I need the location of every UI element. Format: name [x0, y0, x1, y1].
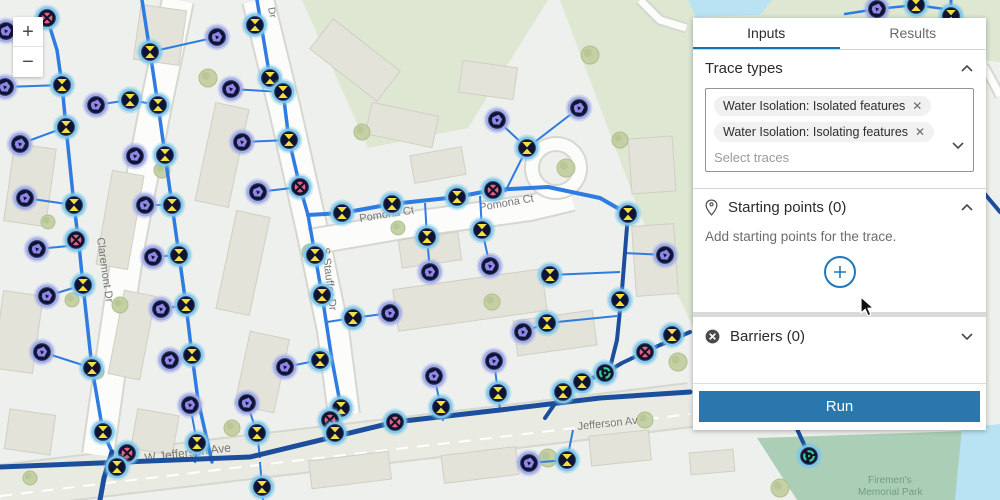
- zoom-out-button[interactable]: −: [13, 47, 43, 77]
- minus-icon: −: [22, 51, 34, 73]
- symbol-hydrant[interactable]: [122, 143, 149, 170]
- symbol-valve[interactable]: [117, 87, 144, 114]
- symbol-valve[interactable]: [469, 217, 496, 244]
- symbol-hydrant[interactable]: [204, 24, 231, 51]
- symbol-hydrant[interactable]: [377, 300, 404, 327]
- symbol-hydrant[interactable]: [132, 192, 159, 219]
- symbol-valve[interactable]: [307, 347, 334, 374]
- symbol-hydrant[interactable]: [417, 259, 444, 286]
- symbol-valve[interactable]: [322, 420, 349, 447]
- symbol-hydrant[interactable]: [7, 131, 34, 158]
- symbol-valve[interactable]: [242, 12, 269, 39]
- starting-points-title: Starting points (0): [728, 199, 846, 216]
- select-traces-placeholder[interactable]: Select traces: [714, 150, 947, 165]
- symbol-valve[interactable]: [159, 192, 186, 219]
- symbol-valve[interactable]: [414, 224, 441, 251]
- symbol-valve[interactable]: [537, 262, 564, 289]
- symbol-valve[interactable]: [145, 92, 172, 119]
- trace-panel: Inputs Results Trace types Water Isolati…: [693, 18, 986, 430]
- app-window: DrClaremont DrS Stauffer DrPomona CtPomo…: [0, 0, 1000, 500]
- symbol-valve[interactable]: [302, 242, 329, 269]
- symbol-closed[interactable]: [382, 409, 409, 436]
- symbol-valve[interactable]: [53, 114, 80, 141]
- chevron-down-icon[interactable]: [951, 141, 965, 150]
- symbol-hydrant[interactable]: [566, 95, 593, 122]
- symbol-hydrant[interactable]: [157, 347, 184, 374]
- symbol-valve[interactable]: [137, 39, 164, 66]
- symbol-valve[interactable]: [61, 192, 88, 219]
- symbol-valve[interactable]: [659, 322, 686, 349]
- trace-chip-label: Water Isolation: Isolated features: [723, 99, 905, 113]
- zoom-in-button[interactable]: +: [13, 17, 43, 47]
- symbol-valve[interactable]: [554, 447, 581, 474]
- symbol-valve[interactable]: [270, 79, 297, 106]
- symbol-valve[interactable]: [90, 419, 117, 446]
- trace-chip: Water Isolation: Isolating features ✕: [714, 122, 934, 142]
- symbol-valve[interactable]: [184, 430, 211, 457]
- symbol-valve[interactable]: [249, 474, 276, 500]
- symbol-valve[interactable]: [276, 127, 303, 154]
- symbol-valve[interactable]: [173, 292, 200, 319]
- starting-points-section: Starting points (0) Add starting points …: [693, 189, 986, 312]
- tab-inputs[interactable]: Inputs: [693, 18, 840, 49]
- close-icon[interactable]: ✕: [912, 100, 922, 112]
- barriers-section-header[interactable]: Barriers (0): [693, 317, 986, 356]
- symbol-valve[interactable]: [428, 394, 455, 421]
- add-starting-point-button[interactable]: [824, 256, 856, 288]
- plus-icon: +: [22, 21, 34, 43]
- symbol-valve[interactable]: [379, 191, 406, 218]
- run-button-area: Run: [693, 383, 986, 430]
- symbol-valve[interactable]: [444, 184, 471, 211]
- trace-chip-label: Water Isolation: Isolating features: [723, 125, 908, 139]
- symbol-valve[interactable]: [485, 380, 512, 407]
- symbol-valve[interactable]: [329, 200, 356, 227]
- symbol-hydrant[interactable]: [83, 92, 110, 119]
- close-icon[interactable]: ✕: [915, 126, 925, 138]
- symbol-valve[interactable]: [79, 355, 106, 382]
- symbol-valve[interactable]: [244, 420, 271, 447]
- chevron-up-icon[interactable]: [960, 64, 974, 73]
- symbol-hydrant[interactable]: [484, 107, 511, 134]
- symbol-hydrant[interactable]: [477, 253, 504, 280]
- symbol-valve[interactable]: [309, 282, 336, 309]
- symbol-hydrant[interactable]: [516, 450, 543, 477]
- symbol-hydrant[interactable]: [229, 129, 256, 156]
- symbol-flow[interactable]: [592, 360, 619, 387]
- symbol-flow[interactable]: [796, 443, 823, 470]
- park-label: Memorial Park: [858, 487, 923, 498]
- symbol-valve[interactable]: [550, 379, 577, 406]
- symbol-hydrant[interactable]: [272, 354, 299, 381]
- symbol-valve[interactable]: [49, 72, 76, 99]
- trace-types-combobox[interactable]: Water Isolation: Isolated features ✕ Wat…: [705, 88, 974, 172]
- symbol-hydrant[interactable]: [510, 319, 537, 346]
- tab-results[interactable]: Results: [840, 18, 987, 49]
- water-areas: [688, 0, 772, 17]
- park-label: Firemen's: [868, 475, 912, 486]
- symbol-hydrant[interactable]: [177, 392, 204, 419]
- symbol-hydrant[interactable]: [29, 339, 56, 366]
- symbol-valve[interactable]: [340, 305, 367, 332]
- symbol-hydrant[interactable]: [245, 179, 272, 206]
- starting-point-pin-icon: [705, 199, 718, 216]
- trace-chip: Water Isolation: Isolated features ✕: [714, 96, 931, 116]
- symbol-closed[interactable]: [287, 174, 314, 201]
- symbol-closed[interactable]: [480, 177, 507, 204]
- symbol-hydrant[interactable]: [148, 296, 175, 323]
- symbol-closed[interactable]: [63, 227, 90, 254]
- symbol-hydrant[interactable]: [481, 348, 508, 375]
- symbol-valve[interactable]: [152, 142, 179, 169]
- starting-points-description: Add starting points for the trace.: [705, 229, 974, 244]
- trace-types-section: Trace types Water Isolation: Isolated fe…: [693, 50, 986, 182]
- symbol-hydrant[interactable]: [24, 236, 51, 263]
- water-areas: [955, 424, 1000, 500]
- symbol-valve[interactable]: [615, 201, 642, 228]
- symbol-closed[interactable]: [632, 339, 659, 366]
- chevron-up-icon[interactable]: [960, 203, 974, 212]
- chevron-down-icon[interactable]: [960, 332, 974, 341]
- symbol-valve[interactable]: [534, 310, 561, 337]
- symbol-hydrant[interactable]: [12, 185, 39, 212]
- symbol-valve[interactable]: [166, 242, 193, 269]
- symbol-hydrant[interactable]: [34, 283, 61, 310]
- plus-icon: [833, 265, 847, 279]
- symbol-hydrant[interactable]: [140, 244, 167, 271]
- map-zoom-control: + −: [13, 17, 43, 77]
- panel-tabs: Inputs Results: [693, 18, 986, 49]
- symbol-hydrant[interactable]: [652, 242, 679, 269]
- trace-types-title: Trace types: [705, 60, 783, 77]
- symbol-valve[interactable]: [514, 135, 541, 162]
- symbol-valve[interactable]: [607, 287, 634, 314]
- barriers-title: Barriers (0): [730, 328, 805, 345]
- symbol-hydrant[interactable]: [421, 363, 448, 390]
- barrier-icon: [705, 329, 720, 344]
- mouse-cursor-icon: [860, 296, 876, 318]
- symbol-hydrant[interactable]: [234, 390, 261, 417]
- symbol-valve[interactable]: [104, 454, 131, 481]
- symbol-valve[interactable]: [70, 272, 97, 299]
- symbol-hydrant[interactable]: [218, 76, 245, 103]
- run-button[interactable]: Run: [699, 391, 980, 422]
